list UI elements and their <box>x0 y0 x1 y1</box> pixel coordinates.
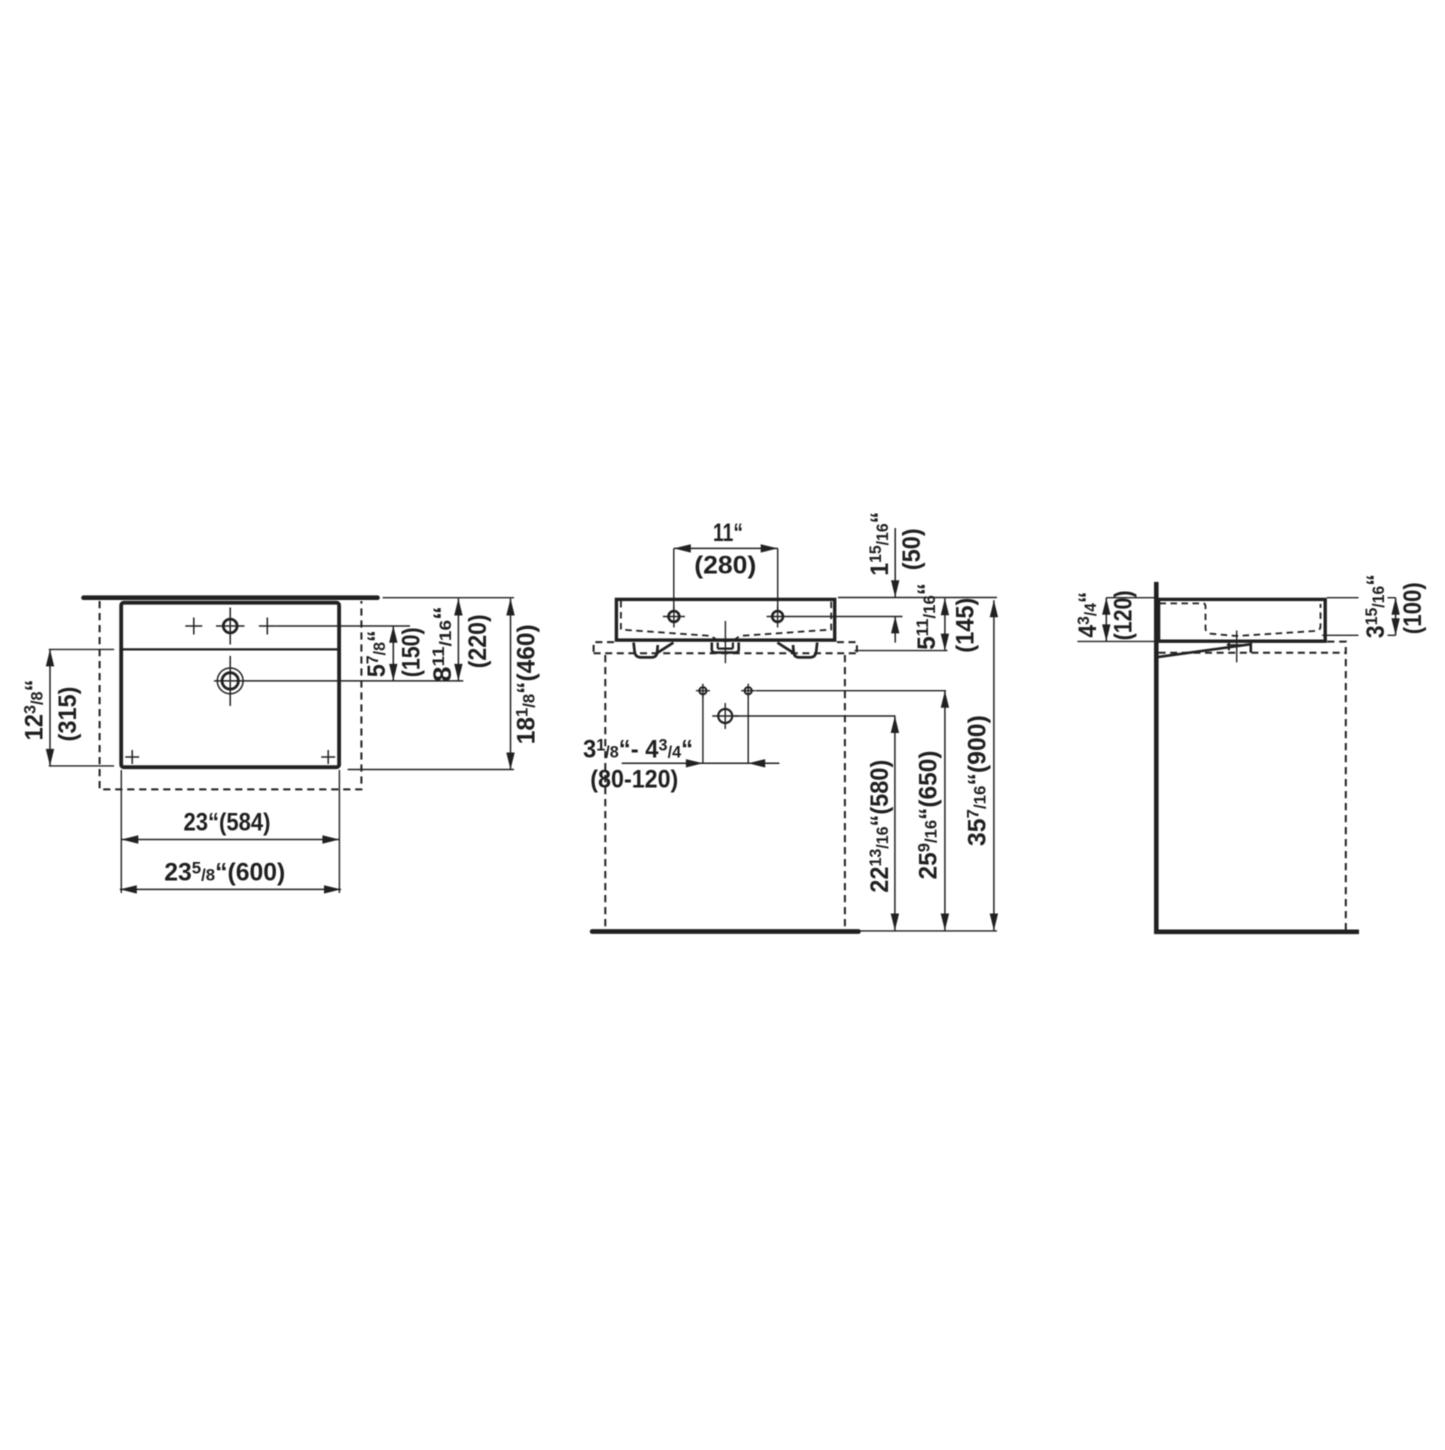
svg-text:(315): (315) <box>54 687 82 742</box>
svg-text:(80-120): (80-120) <box>590 765 678 793</box>
svg-text:(50): (50) <box>898 528 926 570</box>
svg-text:(220): (220) <box>464 614 492 668</box>
svg-text:23“(584): 23“(584) <box>184 809 271 837</box>
svg-text:(280): (280) <box>694 552 756 580</box>
svg-text:(150): (150) <box>398 627 426 677</box>
svg-text:235/8“(600): 235/8“(600) <box>164 858 285 886</box>
svg-text:259/16“(650): 259/16“(650) <box>914 750 942 879</box>
svg-text:(120): (120) <box>1109 590 1137 640</box>
svg-text:181/8“(460): 181/8“(460) <box>512 624 540 744</box>
svg-text:(100): (100) <box>1399 582 1427 634</box>
svg-text:2213/16“(580): 2213/16“(580) <box>866 760 894 893</box>
svg-text:357/16“(900): 357/16“(900) <box>964 715 992 846</box>
svg-text:(145): (145) <box>951 598 979 653</box>
svg-text:11“: 11“ <box>713 519 743 547</box>
